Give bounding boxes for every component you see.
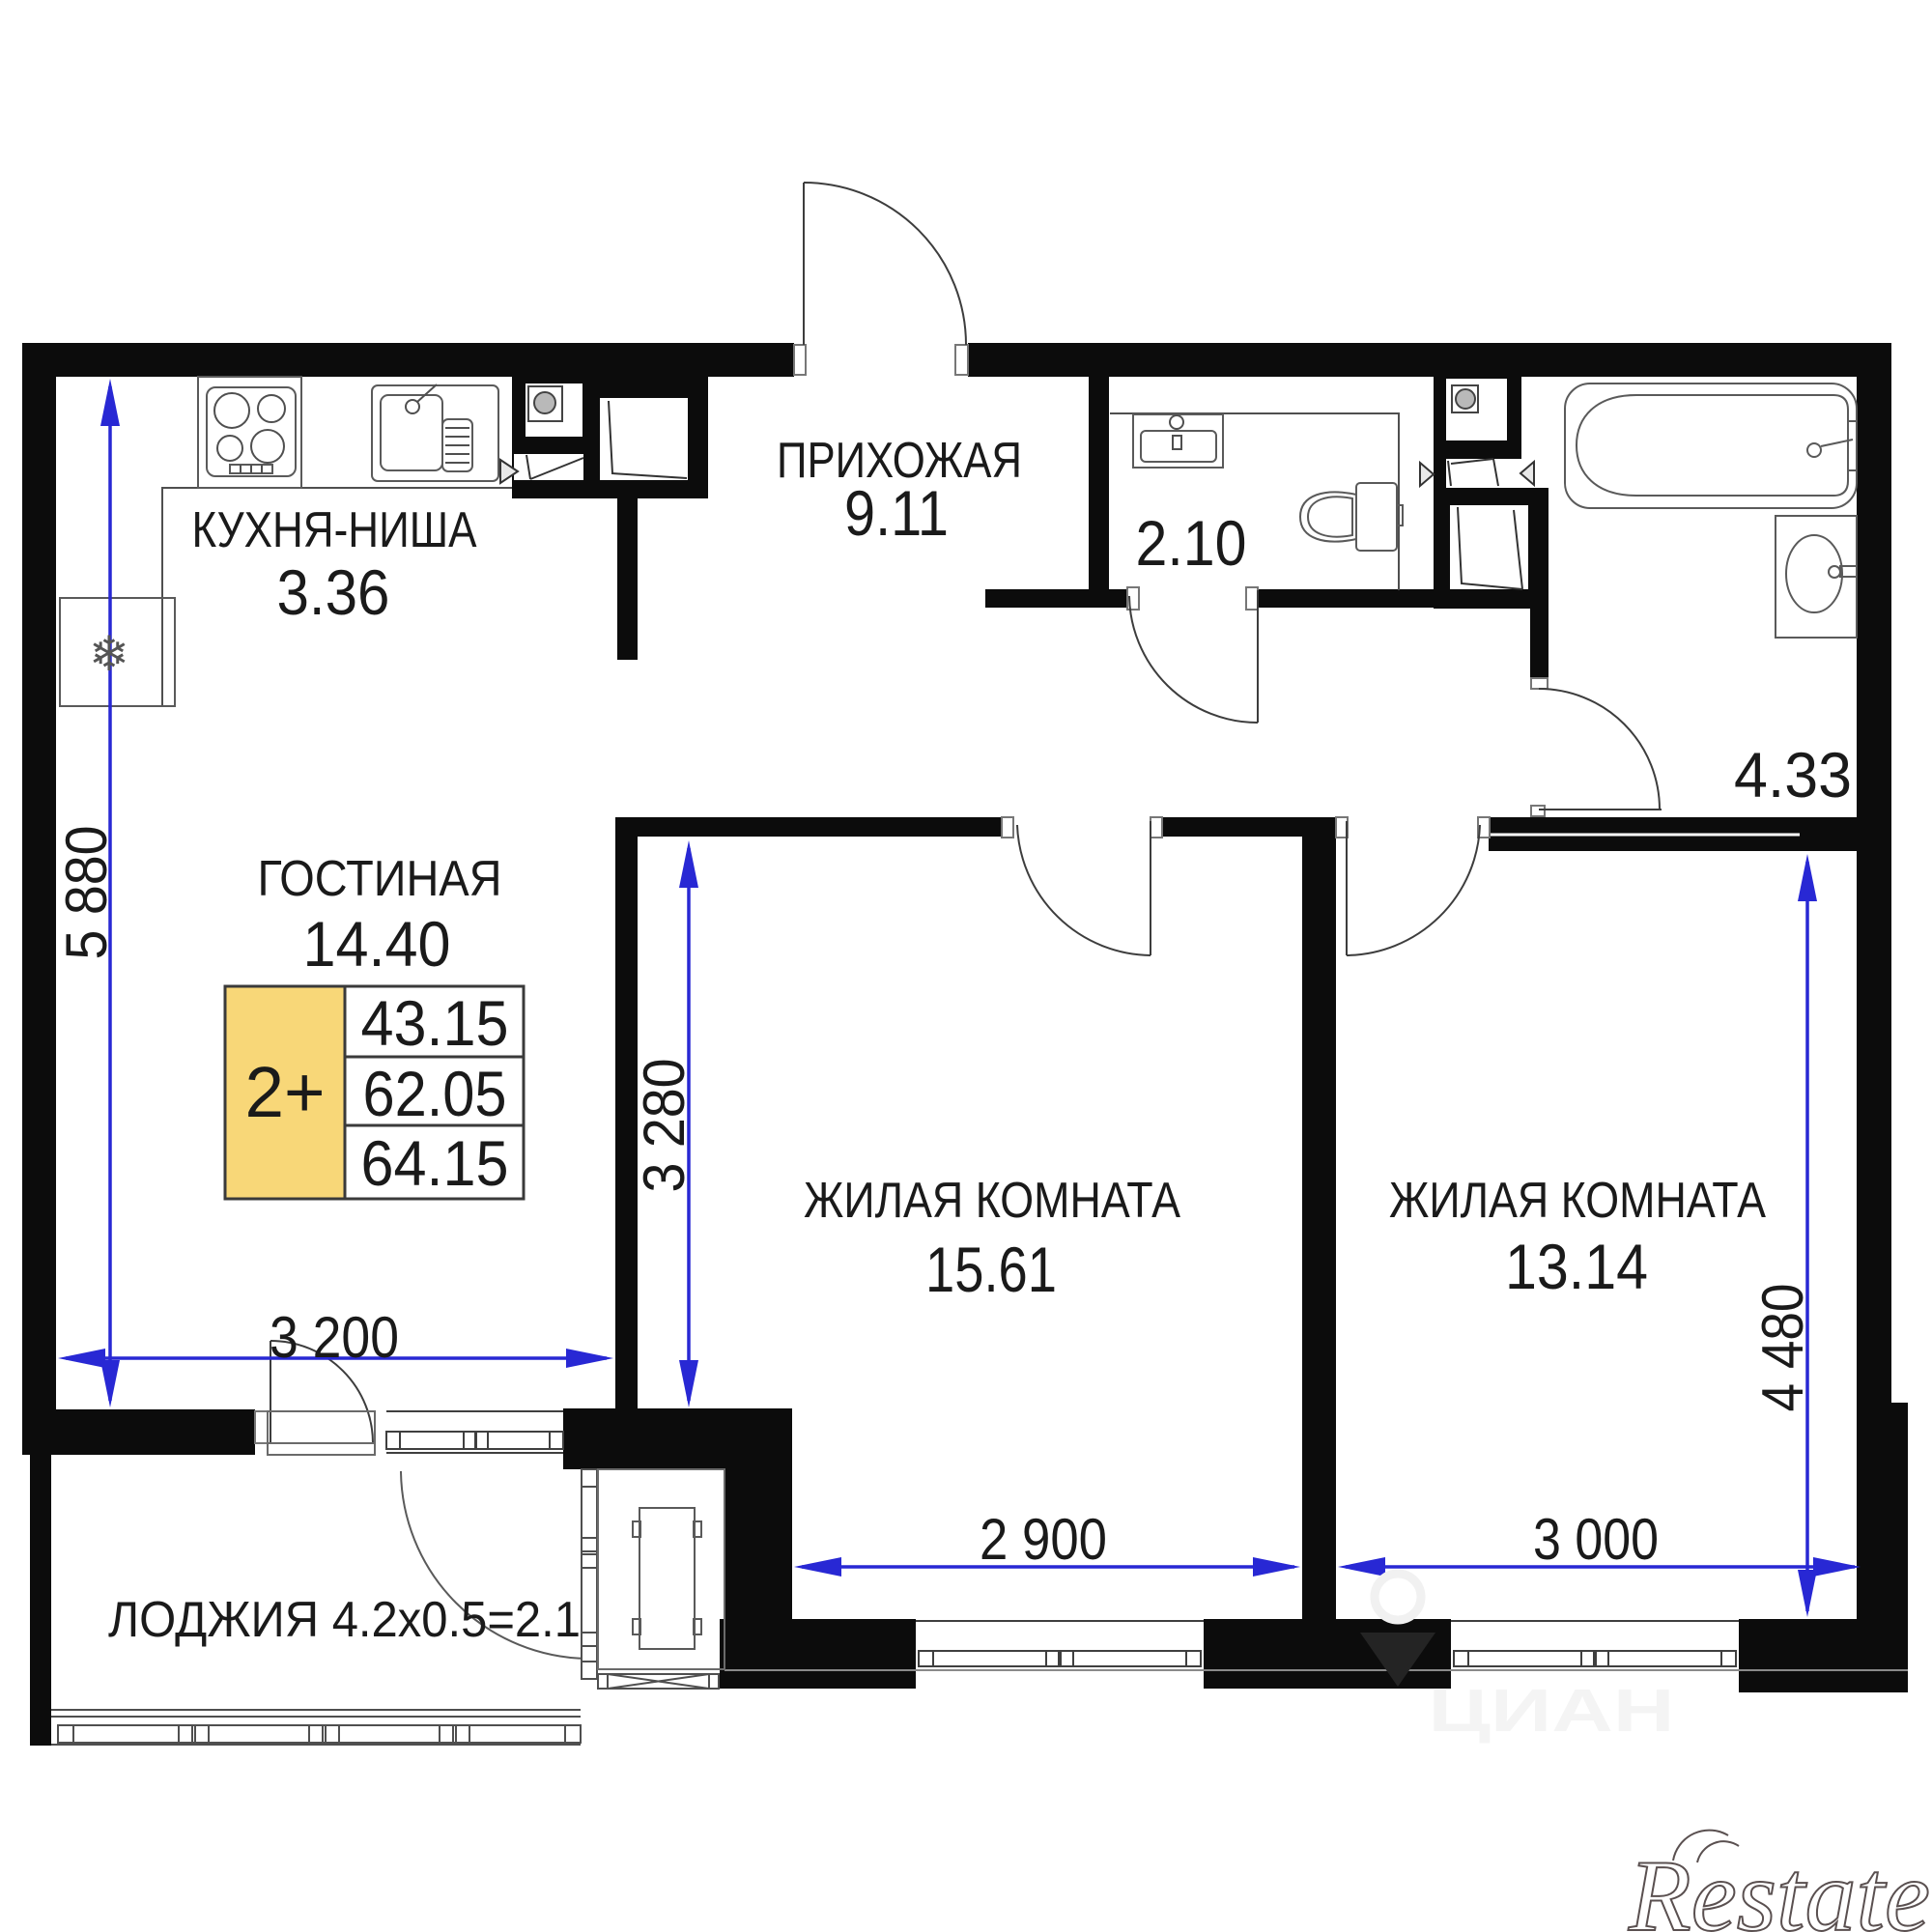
svg-text:ГОСТИНАЯ: ГОСТИНАЯ [258, 851, 502, 907]
svg-text:2.10: 2.10 [1136, 507, 1247, 579]
svg-text:3.36: 3.36 [277, 556, 390, 628]
svg-text:3 280: 3 280 [632, 1059, 696, 1193]
svg-text:Restate: Restate [1628, 1839, 1930, 1932]
svg-text:КУХНЯ-НИША: КУХНЯ-НИША [192, 502, 477, 558]
svg-text:2 900: 2 900 [980, 1507, 1107, 1572]
svg-text:14.40: 14.40 [303, 908, 451, 980]
svg-text:4.33: 4.33 [1734, 739, 1852, 810]
svg-text:3 200: 3 200 [270, 1305, 399, 1370]
svg-text:ЦИАН: ЦИАН [1429, 1678, 1675, 1745]
svg-text:2+: 2+ [245, 1052, 326, 1132]
svg-text:9.11: 9.11 [844, 477, 949, 549]
svg-text:62.05: 62.05 [363, 1058, 507, 1129]
svg-text:4 480: 4 480 [1750, 1284, 1815, 1412]
svg-text:ЖИЛАЯ КОМНАТА: ЖИЛАЯ КОМНАТА [804, 1173, 1180, 1229]
svg-text:ЛОДЖИЯ 4.2х0.5=2.1: ЛОДЖИЯ 4.2х0.5=2.1 [108, 1592, 581, 1648]
svg-text:ЖИЛАЯ КОМНАТА: ЖИЛАЯ КОМНАТА [1389, 1173, 1766, 1229]
svg-text:15.61: 15.61 [925, 1234, 1057, 1305]
svg-text:43.15: 43.15 [361, 987, 509, 1059]
svg-text:64.15: 64.15 [361, 1127, 509, 1199]
svg-text:3 000: 3 000 [1533, 1507, 1659, 1572]
svg-text:❄: ❄ [89, 627, 129, 681]
svg-text:5 880: 5 880 [54, 826, 119, 960]
svg-text:13.14: 13.14 [1505, 1231, 1648, 1302]
